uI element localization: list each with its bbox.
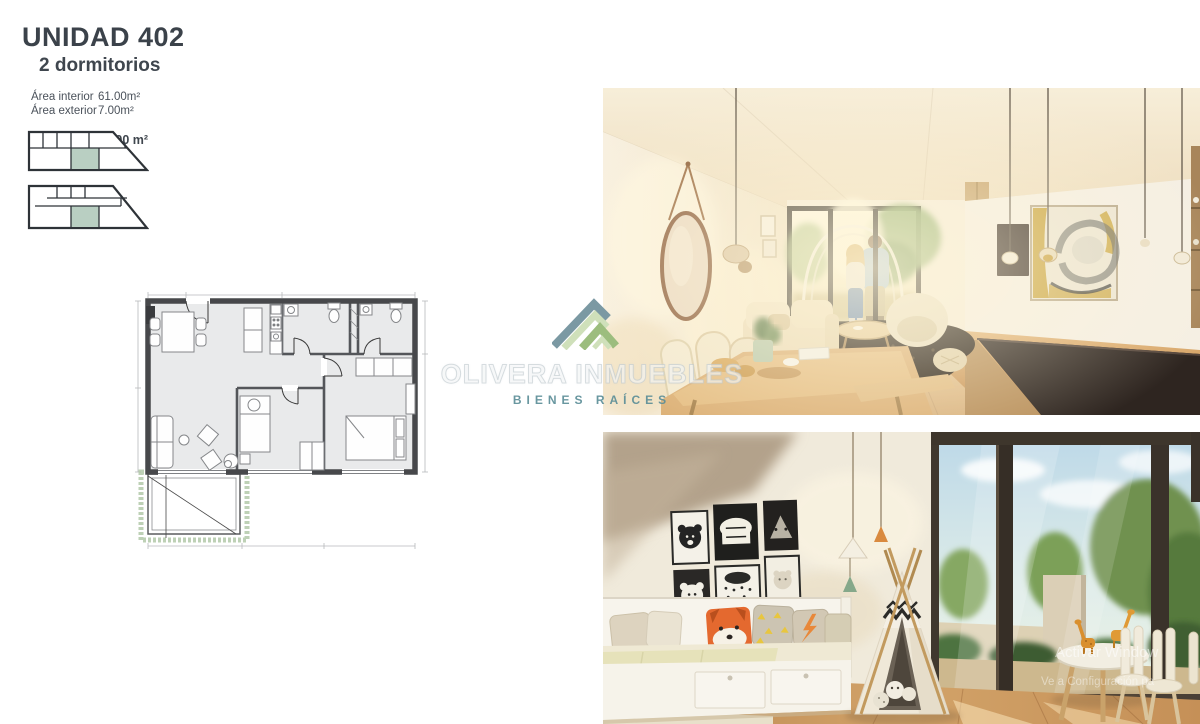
windows <box>158 469 404 475</box>
wardrobe <box>406 384 415 414</box>
key-plan-level-1 <box>27 130 149 172</box>
listing-page: UNIDAD 402 2 dormitorios Área interior 6… <box>0 0 1200 724</box>
area-interior-value: 61.00m² <box>98 90 140 104</box>
daybed <box>603 597 851 724</box>
dotted-cushion <box>873 692 889 708</box>
activation-watermark-line1: Activar Window <box>1055 644 1200 661</box>
area-interior-row: Área interior 61.00m² <box>31 90 185 104</box>
poster-raccoon <box>763 500 799 551</box>
unit-subtitle: 2 dormitorios <box>39 55 185 77</box>
closet-2 <box>356 358 412 376</box>
unit-title: UNIDAD 402 <box>22 22 185 53</box>
bath2-toilet <box>390 303 402 309</box>
window-glow <box>603 88 1200 415</box>
poster-black-bear <box>671 511 709 564</box>
area-table: Área interior 61.00m² Área exterior 7.00… <box>31 90 185 118</box>
highlighted-unit <box>71 206 99 227</box>
triangle-pillow <box>752 605 794 647</box>
lightning-pillow <box>792 609 830 647</box>
area-exterior-label: Área exterior <box>31 104 98 118</box>
floor-plan <box>132 290 432 559</box>
highlighted-unit <box>71 148 99 169</box>
photo-living-room <box>603 88 1200 415</box>
dining-table <box>162 312 194 352</box>
area-interior-label: Área interior <box>31 90 98 104</box>
photo-kids-room: Activar Window Ve a Configuración pa <box>603 432 1200 724</box>
key-plan-level-2 <box>27 184 149 230</box>
building-key-plans <box>27 130 149 242</box>
unit-info: UNIDAD 402 2 dormitorios Área interior 6… <box>22 22 185 147</box>
area-exterior-value: 7.00m² <box>98 104 134 118</box>
terrace <box>141 472 247 540</box>
bath1-toilet <box>328 303 340 309</box>
activation-watermark-line2: Ve a Configuración pa <box>1041 676 1200 688</box>
area-exterior-row: Área exterior 7.00m² <box>31 104 185 118</box>
plush-bear <box>886 681 904 699</box>
poster-badge <box>713 503 759 561</box>
